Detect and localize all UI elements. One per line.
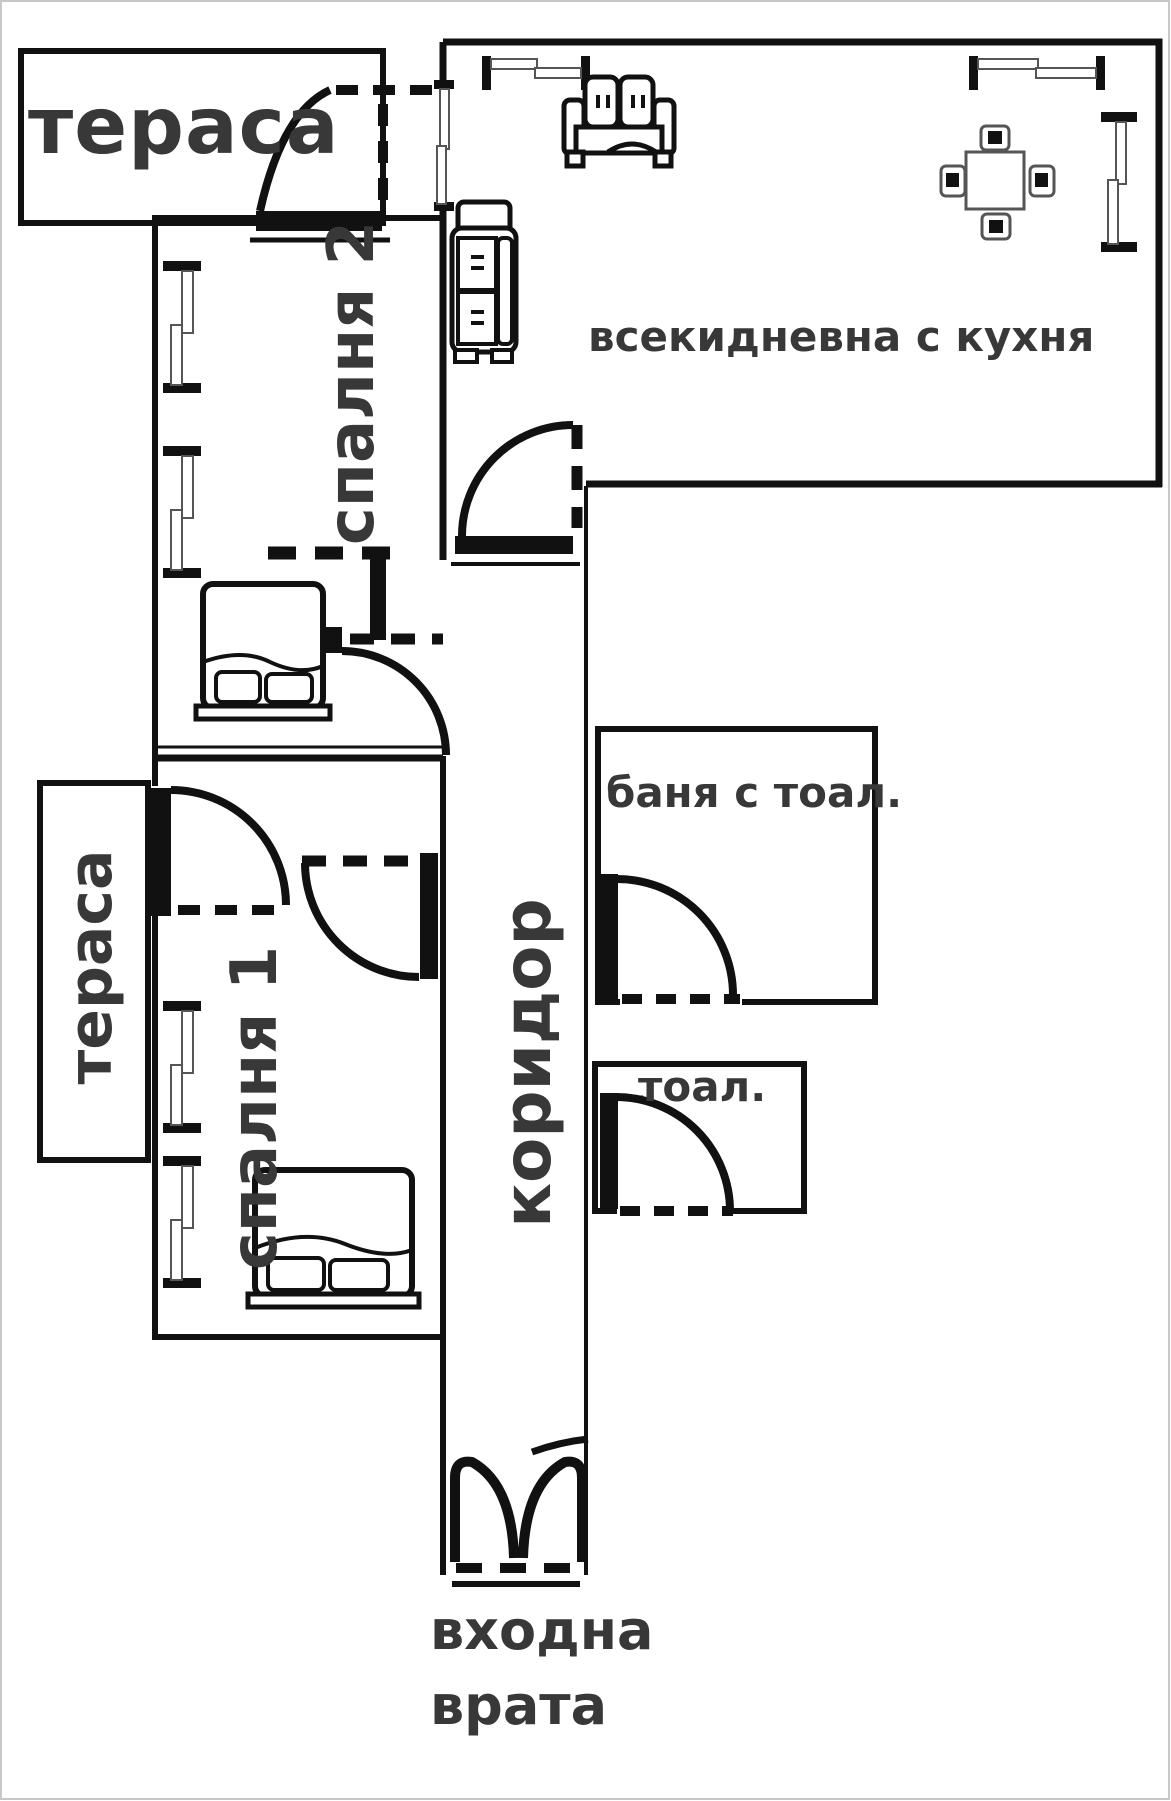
window-icon [163, 446, 201, 578]
dining-table-icon [941, 126, 1054, 239]
window-icon [163, 1001, 201, 1133]
room-label-toilet: тоал. [638, 1066, 766, 1108]
door-swing-icon [302, 853, 438, 979]
window-icon [969, 56, 1105, 90]
living-room-top-right-walls [443, 42, 1159, 487]
entrance-label-line2: врата [430, 1669, 653, 1744]
entrance-label-line1: входна [430, 1594, 653, 1669]
entrance-double-door-icon [452, 1439, 588, 1584]
window-icon [163, 261, 201, 393]
room-label-terrace-top: тераса [28, 88, 339, 166]
room-label-bedroom-2: спалня 2 [320, 221, 384, 545]
room-label-bedroom-1: спалня 1 [223, 946, 287, 1270]
door-swing-icon [451, 425, 580, 564]
window-icon [434, 80, 454, 211]
entrance-door-label: входна врата [430, 1594, 653, 1743]
floor-plan: тераса спалня 2 всекидневна с кухня баня… [0, 0, 1171, 1801]
floor-plan-drawing [0, 0, 1171, 1801]
armchair-icon [452, 202, 516, 362]
door-swing-icon [148, 788, 286, 916]
room-label-corridor: коридор [495, 898, 561, 1228]
room-label-terrace-left: тераса [61, 850, 121, 1085]
double-bed-icon [196, 584, 330, 719]
sofa-icon [564, 77, 674, 166]
door-swing-icon [598, 874, 740, 1000]
window-icon [1101, 112, 1137, 252]
room-label-living-kitchen: всекидневна с кухня [588, 316, 1094, 358]
room-label-bathroom: баня с тоал. [606, 772, 902, 814]
window-icon [482, 56, 590, 90]
window-icon [163, 1156, 201, 1288]
